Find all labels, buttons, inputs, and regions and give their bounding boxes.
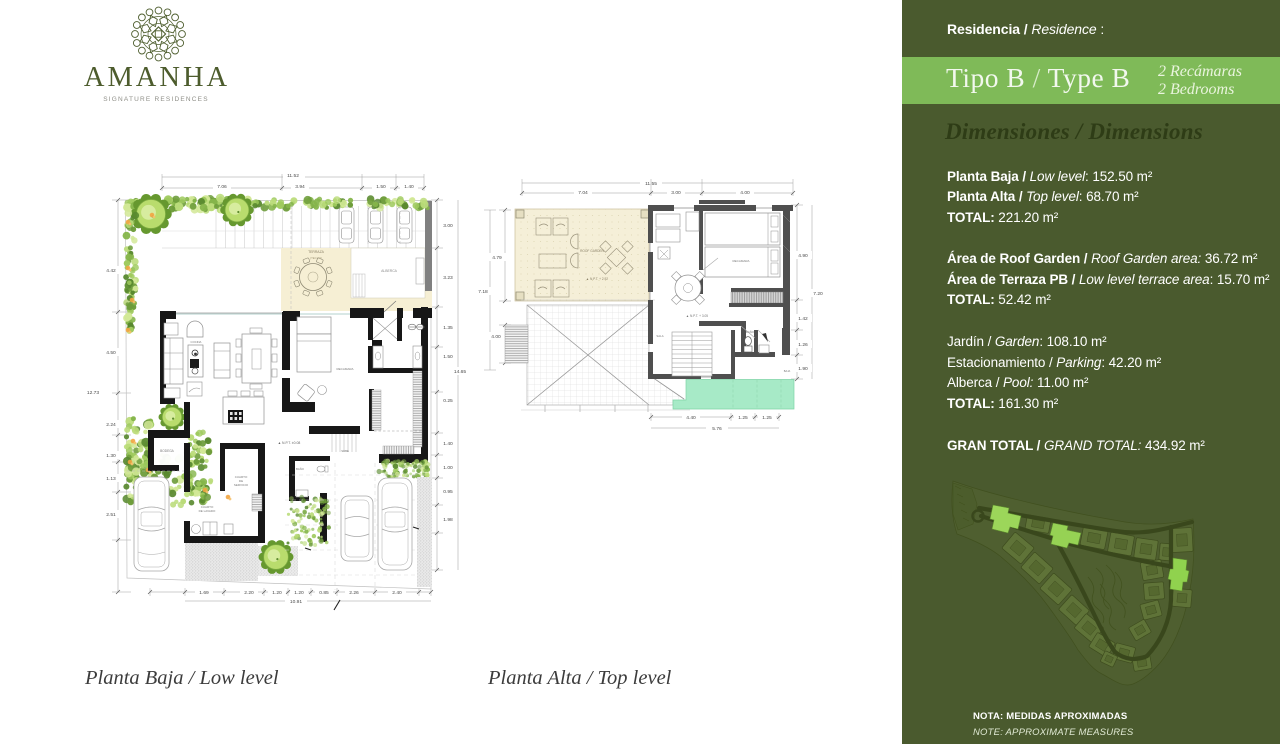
svg-text:SERVICIO: SERVICIO [234,483,249,487]
svg-text:4.79: 4.79 [492,255,502,261]
svg-text:BAJA: BAJA [784,369,791,373]
svg-text:Planta Baja / Low level: Planta Baja / Low level [84,667,279,689]
svg-text:ALBERCA: ALBERCA [381,269,398,273]
svg-text:1.50: 1.50 [376,184,386,190]
svg-text:1.00: 1.00 [443,465,453,471]
svg-text:2.24: 2.24 [106,422,116,428]
svg-text:4.50: 4.50 [106,350,116,356]
svg-text:BODEGA: BODEGA [160,449,175,453]
svg-text:4.90: 4.90 [798,253,808,259]
svg-text:12.73: 12.73 [87,390,100,396]
svg-text:1.26: 1.26 [798,342,808,348]
svg-text:DE LAVADO: DE LAVADO [199,509,216,513]
svg-text:1.13: 1.13 [106,476,116,482]
svg-text:ROOF GARDEN: ROOF GARDEN [580,249,604,253]
svg-text:5.76: 5.76 [712,426,722,432]
svg-text:1.30: 1.30 [106,453,116,459]
svg-text:4.42: 4.42 [106,268,116,274]
svg-text:1.42: 1.42 [798,316,808,322]
svg-text:RECAMARA: RECAMARA [336,367,353,371]
svg-text:2.40: 2.40 [392,590,402,596]
svg-text:0.85: 0.85 [319,590,329,596]
svg-text:3.23: 3.23 [443,275,453,281]
svg-text:14.65: 14.65 [454,369,467,375]
svg-text:3.00: 3.00 [671,190,681,196]
svg-text:11.52: 11.52 [287,173,299,179]
svg-text:1.40: 1.40 [404,184,414,190]
svg-text:1.35: 1.35 [443,325,453,331]
svg-text:1.90: 1.90 [798,366,808,372]
svg-text:4.00: 4.00 [740,190,750,196]
svg-text:2.20: 2.20 [244,590,254,596]
svg-text:▲ N.P.T. + 3.05: ▲ N.P.T. + 3.05 [686,314,708,318]
svg-text:COCINA: COCINA [191,340,202,344]
svg-text:3.00: 3.00 [443,223,453,229]
svg-text:RECAMARA: RECAMARA [732,259,749,263]
svg-text:1.40: 1.40 [443,441,453,447]
svg-text:SIGNATURE RESIDENCES: SIGNATURE RESIDENCES [103,96,209,103]
svg-text:2.51: 2.51 [106,512,116,518]
svg-text:0.95: 0.95 [443,489,453,495]
svg-text:7.04: 7.04 [578,190,588,196]
svg-text:Planta Alta / Top level: Planta Alta / Top level [487,667,672,689]
svg-text:SALA: SALA [656,334,663,338]
svg-text:10.91: 10.91 [290,599,303,605]
svg-text:1.25: 1.25 [738,415,748,421]
svg-text:1.69: 1.69 [199,590,209,596]
svg-text:1.20: 1.20 [294,590,304,596]
svg-text:7.18: 7.18 [478,289,488,295]
svg-text:2.26: 2.26 [349,590,359,596]
svg-text:▲ N.P.T. ±0.08: ▲ N.P.T. ±0.08 [278,441,301,445]
svg-text:7.20: 7.20 [813,291,823,297]
svg-text:SUBE: SUBE [341,449,349,453]
svg-text:7.06: 7.06 [217,184,227,190]
svg-text:1.98: 1.98 [443,517,453,523]
svg-text:TERRAZA: TERRAZA [308,250,325,254]
svg-text:BAÑO: BAÑO [296,466,305,471]
svg-text:4.40: 4.40 [686,415,696,421]
svg-text:▲ N.P.T. + 2.92: ▲ N.P.T. + 2.92 [586,277,608,281]
svg-text:1.25: 1.25 [762,415,772,421]
svg-text:4.00: 4.00 [491,334,501,340]
svg-text:1.20: 1.20 [272,590,282,596]
svg-text:0.25: 0.25 [443,398,453,404]
svg-text:1.50: 1.50 [443,354,453,360]
svg-text:AMANHA: AMANHA [84,62,230,93]
svg-text:3.94: 3.94 [295,184,305,190]
